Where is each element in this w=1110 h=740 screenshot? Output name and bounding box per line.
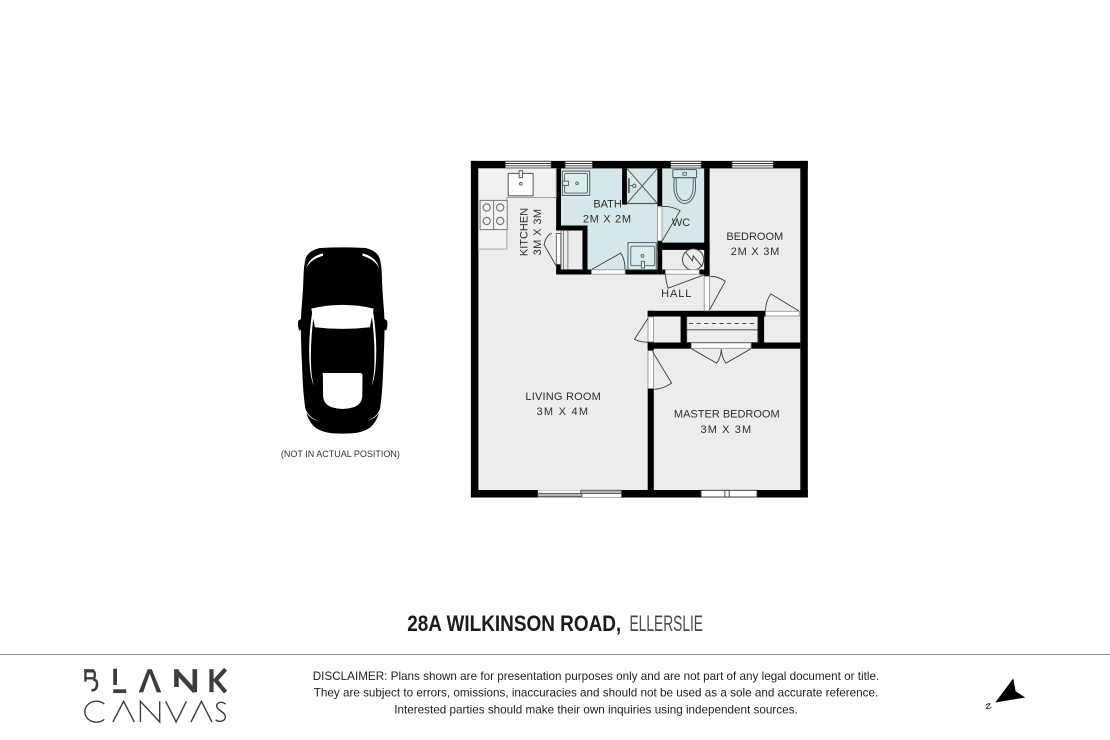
svg-text:2M X 2M: 2M X 2M [583, 214, 632, 226]
svg-text:3M X 3M: 3M X 3M [532, 209, 544, 256]
svg-text:(NOT IN ACTUAL POSITION): (NOT IN ACTUAL POSITION) [281, 449, 400, 459]
svg-text:WC: WC [672, 217, 690, 229]
svg-text:LIVING ROOM: LIVING ROOM [525, 391, 601, 403]
svg-text:They are subject to errors, om: They are subject to errors, omissions, i… [314, 687, 879, 700]
svg-text:28A WILKINSON ROAD,: 28A WILKINSON ROAD, [407, 611, 621, 636]
svg-text:2M X 3M: 2M X 3M [731, 246, 780, 258]
svg-text:BEDROOM: BEDROOM [726, 231, 783, 243]
svg-text:MASTER BEDROOM: MASTER BEDROOM [674, 408, 780, 420]
svg-text:DISCLAIMER: Plans shown are fo: DISCLAIMER: Plans shown are for presenta… [313, 670, 880, 683]
svg-text:ELLERSLIE: ELLERSLIE [630, 611, 704, 636]
svg-text:Interested parties should make: Interested parties should make their own… [394, 703, 797, 716]
svg-text:3M X 3M: 3M X 3M [701, 424, 753, 436]
svg-text:BATH: BATH [593, 199, 622, 211]
svg-text:KITCHEN: KITCHEN [519, 208, 531, 256]
svg-text:3M X 4M: 3M X 4M [537, 406, 590, 418]
svg-text:HALL: HALL [661, 288, 692, 300]
